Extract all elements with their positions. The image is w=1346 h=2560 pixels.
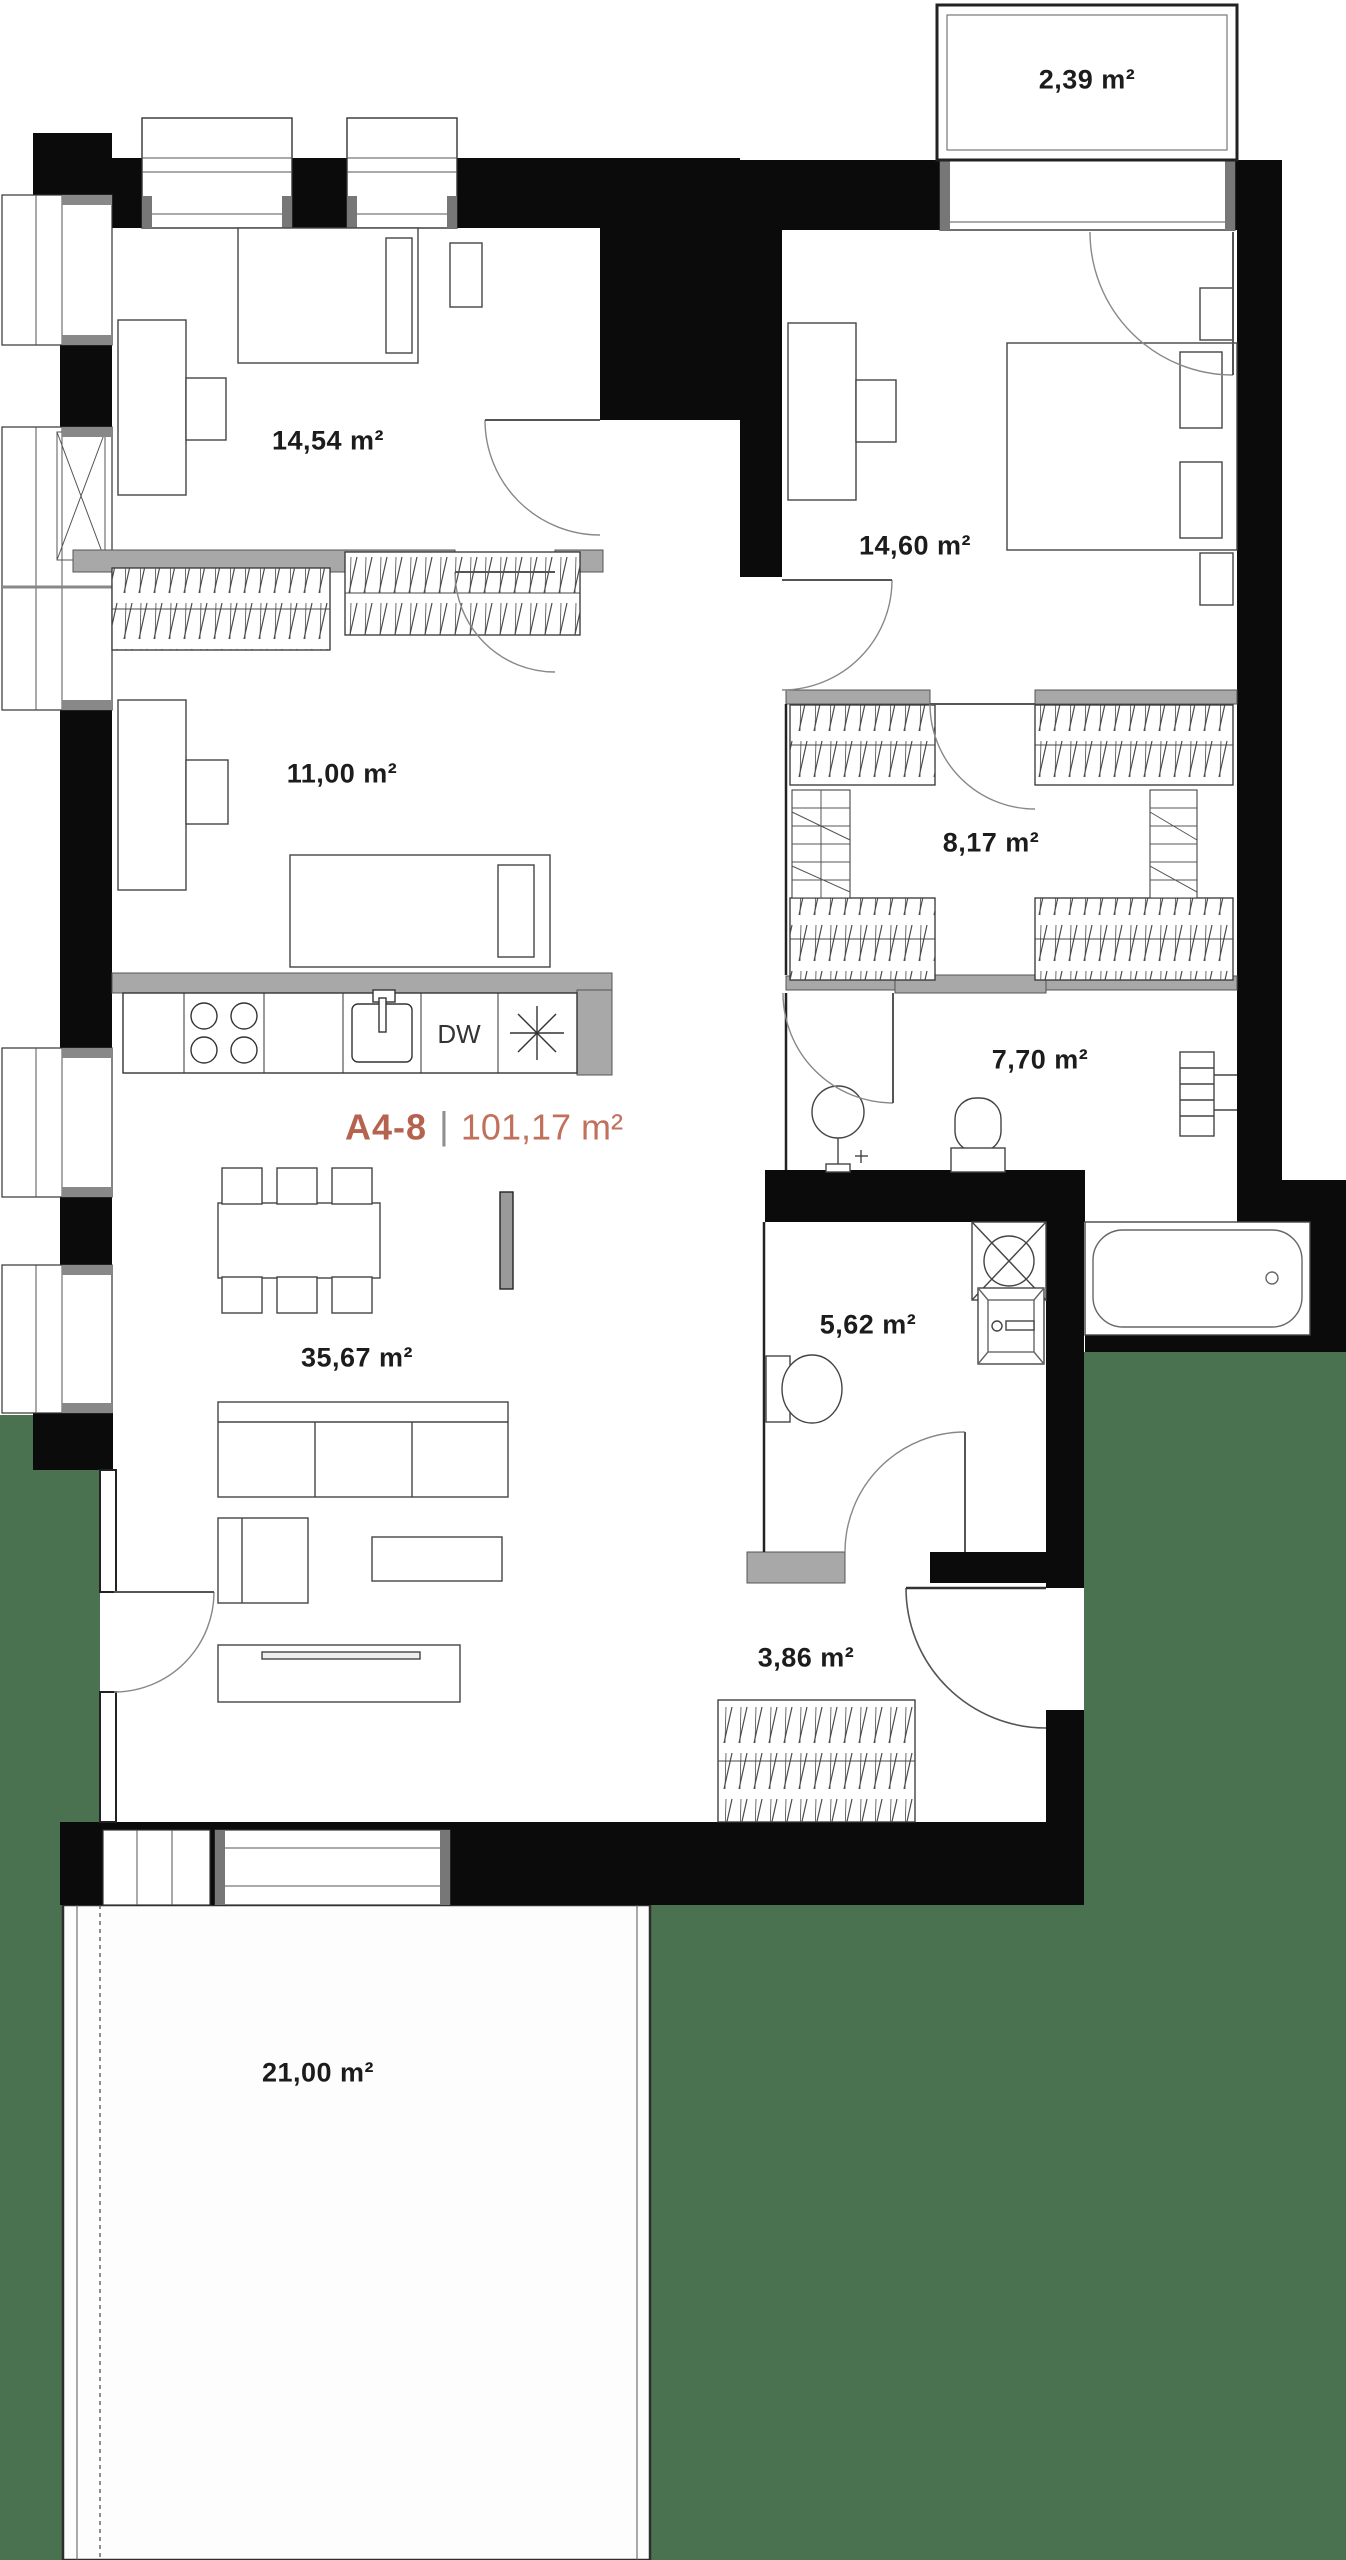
bedroom2-bed — [1007, 288, 1237, 605]
terrace-area-label: 21,00 m² — [262, 2058, 374, 2089]
door-terrace — [114, 1592, 214, 1692]
radiator — [500, 1192, 513, 1289]
window-left-1 — [2, 195, 112, 345]
pedestal-sink-icon — [812, 1086, 868, 1172]
door-bedroom2 — [782, 580, 892, 690]
bedroom1-desk — [118, 320, 226, 495]
bedroom2-area-label: 14,60 m² — [859, 531, 971, 562]
bathroom-area-label: 7,70 m² — [992, 1045, 1089, 1076]
unit-separator: | — [439, 1106, 449, 1149]
dishwasher-label: DW — [437, 1019, 481, 1049]
bedroom3-bed — [290, 855, 550, 967]
hall-area-label: 3,86 m² — [758, 1643, 855, 1674]
armchair — [218, 1518, 308, 1603]
towel-radiator-icon — [1180, 1052, 1237, 1136]
floor-plan: DW — [0, 0, 1346, 2560]
floor-plan-drawing: DW — [0, 0, 1346, 2560]
coffee-table — [372, 1537, 502, 1581]
window-top-1 — [142, 118, 292, 228]
bedroom2-desk — [788, 323, 896, 500]
window-left-4 — [2, 1265, 112, 1413]
toilet-icon — [951, 1098, 1005, 1172]
bedroom3-desk — [118, 700, 228, 890]
wardrobe-bedroom3 — [112, 568, 330, 650]
closet-area-label: 8,17 m² — [943, 828, 1040, 859]
terrace-area — [63, 1905, 650, 2560]
unit-area: 101,17 m² — [461, 1106, 623, 1148]
terrace-door-bay — [103, 1830, 210, 1905]
bathtub-icon — [1085, 1222, 1310, 1335]
door-wc — [845, 1432, 965, 1552]
door-entrance — [906, 1588, 1046, 1728]
living-area-label: 35,67 m² — [301, 1343, 413, 1374]
wardrobe-bedroom1 — [345, 552, 580, 635]
wardrobe-hall — [718, 1700, 915, 1822]
unit-code: A4-8 — [345, 1106, 427, 1148]
bedroom3-area-label: 11,00 m² — [287, 759, 398, 790]
window-left-3 — [2, 1048, 112, 1197]
sofa — [218, 1402, 508, 1497]
window-top-2 — [347, 118, 457, 228]
unit-label: A4-8 | 101,17 m² — [345, 1106, 623, 1149]
vanity-sink-icon — [978, 1288, 1044, 1364]
bedroom1-bed — [238, 228, 482, 363]
wc-toilet-icon — [766, 1355, 842, 1423]
window-bottom — [215, 1830, 450, 1905]
kitchen-counter: DW — [123, 990, 577, 1073]
bedroom1-area-label: 14,54 m² — [272, 426, 384, 457]
dining-table — [218, 1168, 380, 1313]
balcony-area-label: 2,39 m² — [1039, 65, 1136, 96]
wc-area-label: 5,62 m² — [820, 1310, 917, 1341]
fridge-icon — [510, 1006, 564, 1060]
door-bedroom1 — [485, 420, 600, 535]
tv-console — [218, 1645, 460, 1702]
door-closet — [930, 704, 1035, 809]
